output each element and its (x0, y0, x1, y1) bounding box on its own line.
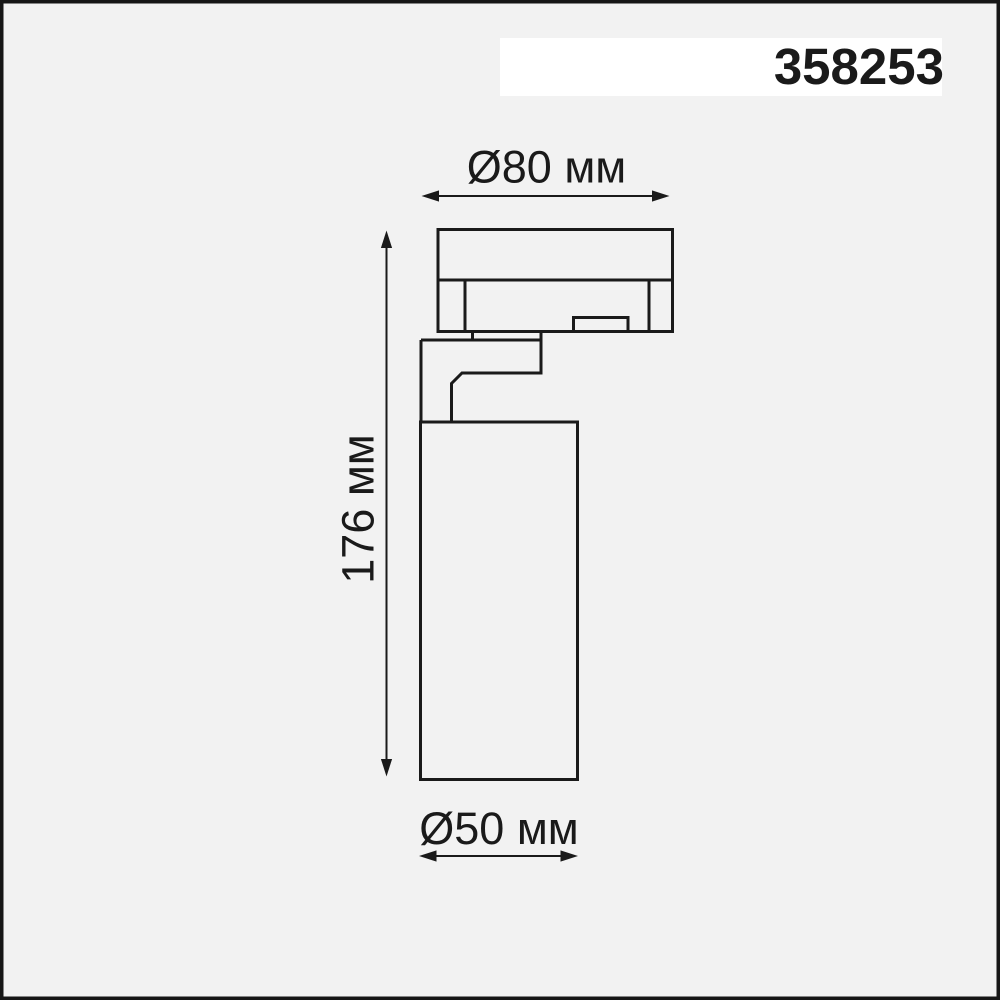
svg-text:Ø80 мм: Ø80 мм (467, 142, 626, 193)
svg-text:Ø50 мм: Ø50 мм (419, 803, 578, 854)
svg-text:176 мм: 176 мм (333, 434, 384, 583)
svg-text:358253: 358253 (774, 38, 944, 95)
